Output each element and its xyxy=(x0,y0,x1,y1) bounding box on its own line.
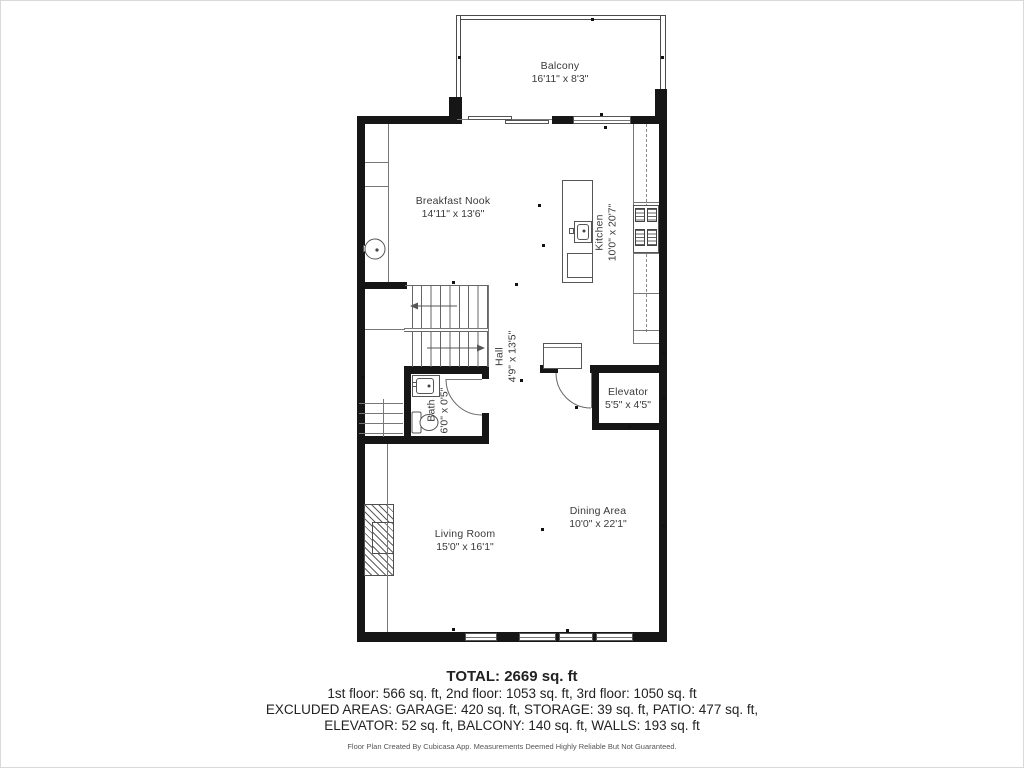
summary-excluded-areas: EXCLUDED AREAS: GARAGE: 420 sq. ft, STOR… xyxy=(0,702,1024,717)
room-label-living-room: Living Room 15'0" x 16'1" xyxy=(385,528,545,553)
room-label-kitchen: Kitchen 10'0" x 20'7" xyxy=(594,173,619,293)
room-name: Balcony xyxy=(480,60,640,73)
room-label-breakfast-nook: Breakfast Nook 14'11" x 13'6" xyxy=(373,195,533,220)
room-name: Elevator xyxy=(568,386,688,399)
dimension-tick xyxy=(520,379,523,382)
dimension-tick xyxy=(661,56,664,59)
dimension-tick xyxy=(628,425,631,428)
room-dims: 10'0" x 20'7" xyxy=(606,173,619,293)
room-label-balcony: Balcony 16'11" x 8'3" xyxy=(480,60,640,85)
dimension-tick xyxy=(452,281,455,284)
room-dims: 4'9" x 13'5" xyxy=(506,302,519,412)
room-label-dining-area: Dining Area 10'0" x 22'1" xyxy=(518,505,678,530)
room-name: Dining Area xyxy=(518,505,678,518)
dimension-tick xyxy=(542,244,545,247)
stairs-up-arrow xyxy=(410,303,457,310)
dimension-tick xyxy=(361,376,364,379)
room-dims: 14'11" x 13'6" xyxy=(373,208,533,221)
summary-floors: 1st floor: 566 sq. ft, 2nd floor: 1053 s… xyxy=(0,686,1024,701)
dimension-tick xyxy=(600,113,603,116)
stairs-down-arrow xyxy=(427,345,485,352)
summary-excluded-areas-2: ELEVATOR: 52 sq. ft, BALCONY: 140 sq. ft… xyxy=(0,718,1024,733)
room-name: Bath xyxy=(426,371,439,451)
room-dims: 15'0" x 16'1" xyxy=(385,541,545,554)
dimension-tick xyxy=(662,351,665,354)
bath-door-arc xyxy=(446,379,482,415)
room-label-elevator: Elevator 5'5" x 4'5" xyxy=(568,386,688,411)
dimension-tick xyxy=(452,628,455,631)
dimension-tick xyxy=(538,204,541,207)
room-label-bath: Bath 6'0" x 0'5" xyxy=(426,371,451,451)
island-faucet-dot xyxy=(583,230,586,233)
dimension-tick xyxy=(458,56,461,59)
room-label-hall: Hall 4'9" x 13'5" xyxy=(494,302,519,412)
floor-plan-canvas: Balcony 16'11" x 8'3" Breakfast Nook 14'… xyxy=(0,0,1024,768)
water-heater-icon xyxy=(365,239,385,259)
dimension-tick xyxy=(591,18,594,21)
dimension-tick xyxy=(566,629,569,632)
room-name: Hall xyxy=(494,302,507,412)
room-dims: 16'11" x 8'3" xyxy=(480,73,640,86)
room-name: Breakfast Nook xyxy=(373,195,533,208)
summary-disclaimer: Floor Plan Created By Cubicasa App. Meas… xyxy=(0,742,1024,751)
room-dims: 6'0" x 0'5" xyxy=(438,371,451,451)
dimension-tick xyxy=(604,126,607,129)
summary-total: TOTAL: 2669 sq. ft xyxy=(0,668,1024,685)
room-name: Kitchen xyxy=(594,173,607,293)
room-dims: 10'0" x 22'1" xyxy=(518,518,678,531)
room-dims: 5'5" x 4'5" xyxy=(568,399,688,412)
dimension-tick xyxy=(361,286,364,289)
dimension-tick xyxy=(515,283,518,286)
